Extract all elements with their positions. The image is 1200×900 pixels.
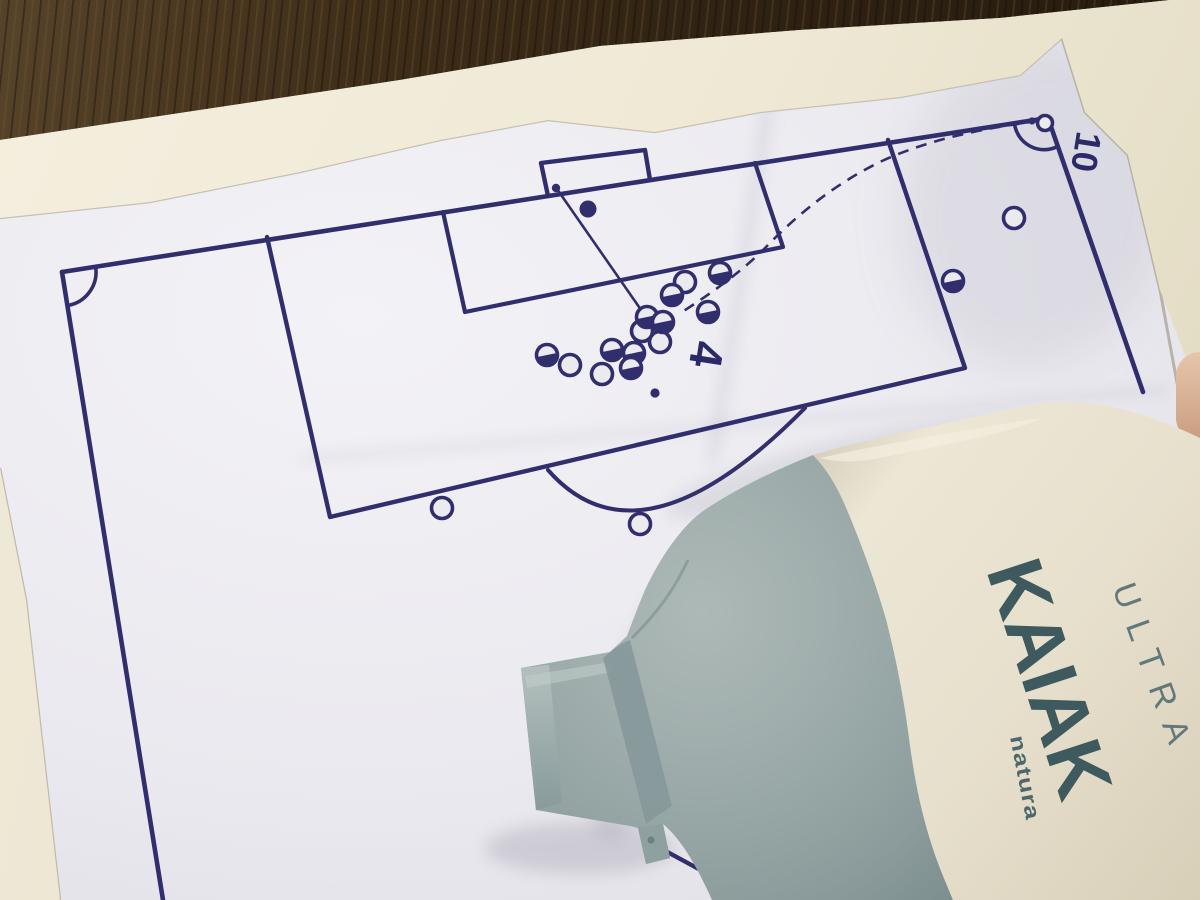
deodorant-bottle: natura KAIAK ULTRA [0,0,1200,900]
photo-scene: 10 4 [0,0,1200,900]
clip-hole [648,837,655,844]
